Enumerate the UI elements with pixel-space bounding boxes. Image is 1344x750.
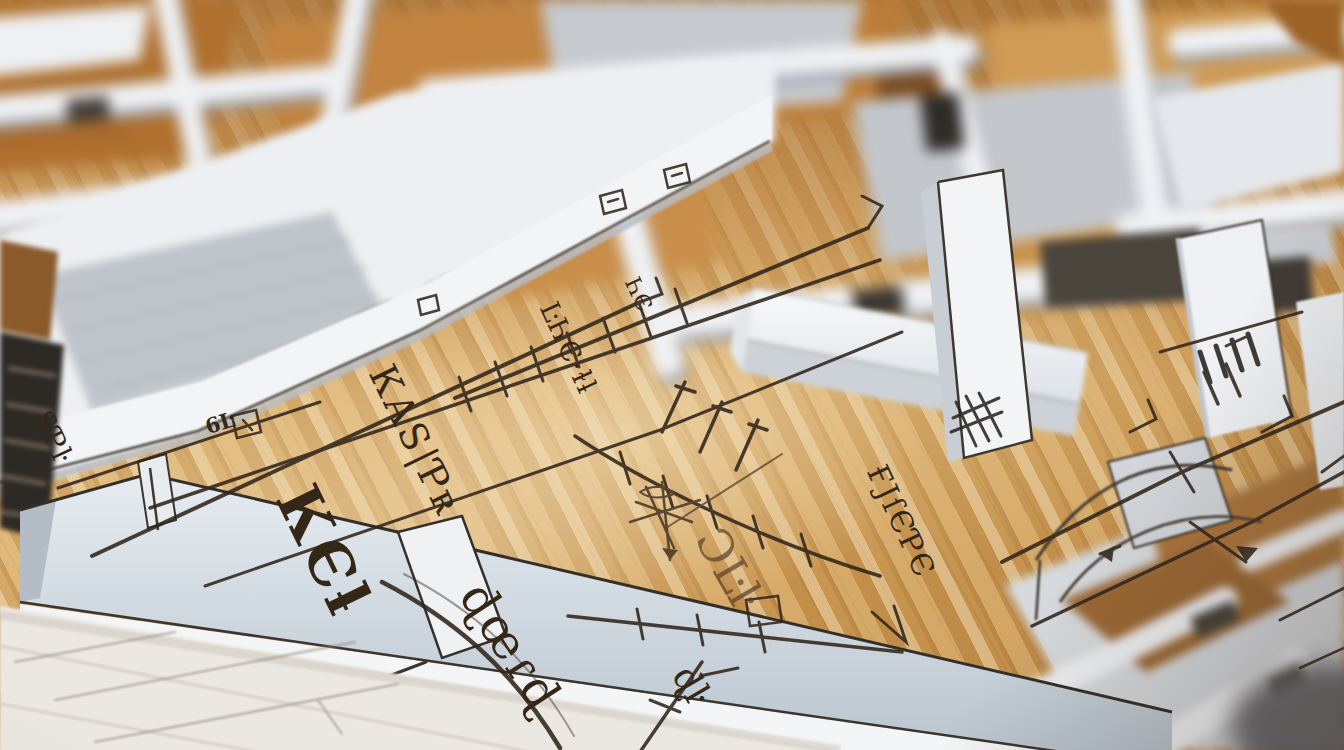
model-and-sketch-layers: 6Ŀ ЅƤŀ КЄƚ КАЅ|Ƥʀ ĿҺЄ·ɫƚ ҺЄ ƆĿŀ ҒЈſЄƤЄ ɖ… xyxy=(0,0,1344,750)
glyph-right-column: ҒЈſЄƤЄ xyxy=(860,459,943,584)
glyph-band-main: КАЅ|Ƥʀ xyxy=(360,358,471,523)
architectural-model-photo: 6Ŀ ЅƤŀ КЄƚ КАЅ|Ƥʀ ĿҺЄ·ɫƚ ҺЄ ƆĿŀ ҒЈſЄƤЄ ɖ… xyxy=(0,0,1344,750)
left-dark-shelf xyxy=(0,240,64,540)
hook-marks xyxy=(662,382,767,470)
